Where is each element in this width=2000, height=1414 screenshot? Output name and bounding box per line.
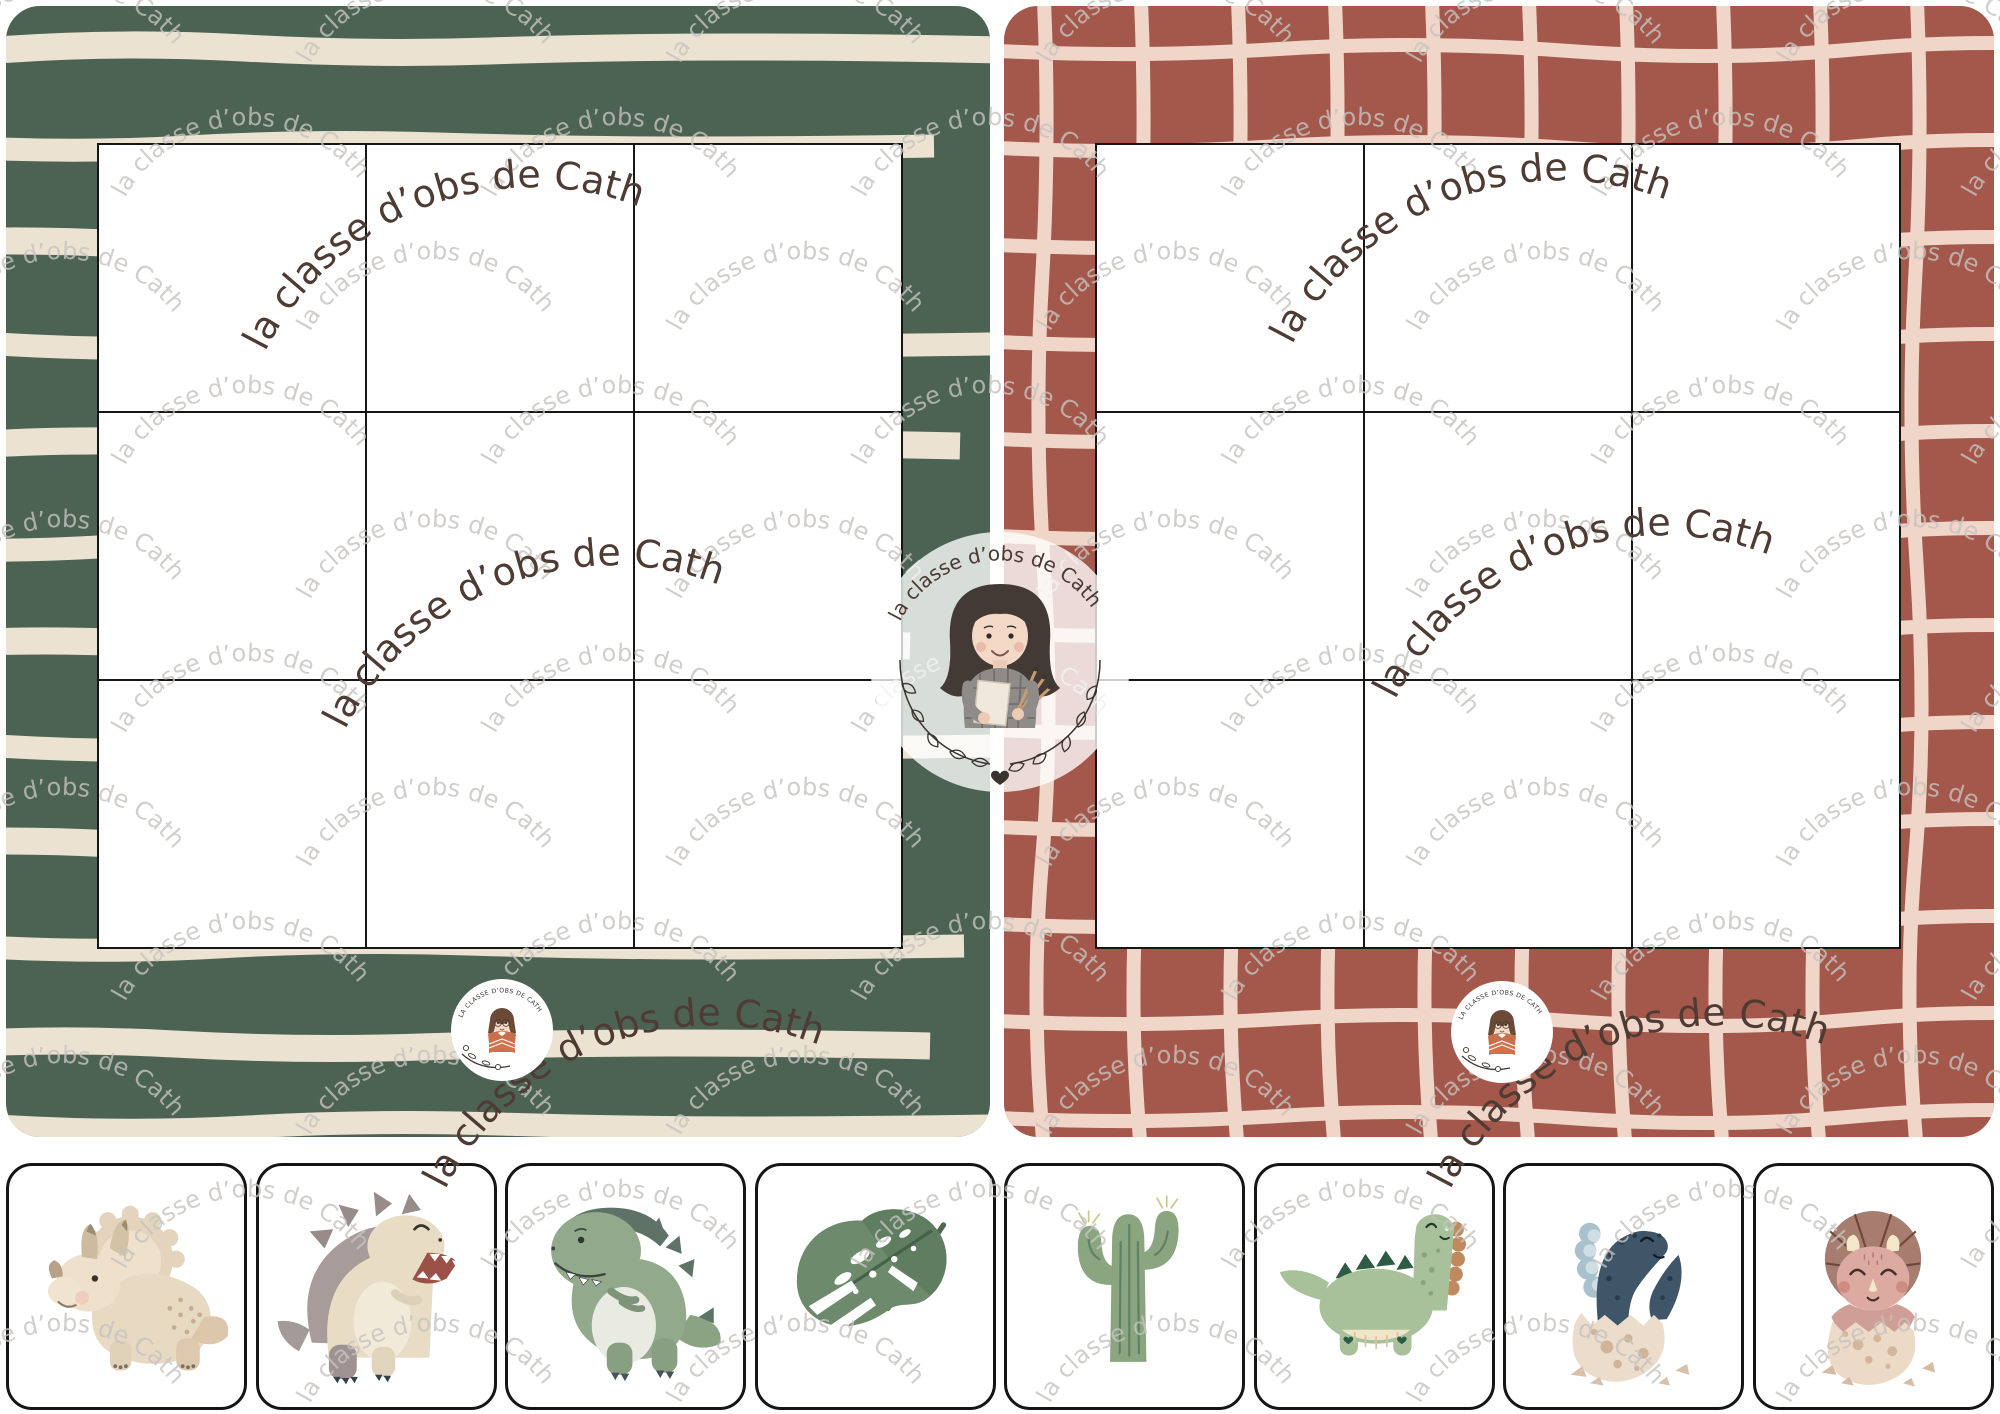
bingo-cell[interactable] xyxy=(99,145,365,411)
bingo-cell[interactable] xyxy=(1097,413,1363,679)
bingo-cell[interactable] xyxy=(1365,413,1631,679)
bingo-grid-right xyxy=(1095,143,1901,949)
bingo-cell[interactable] xyxy=(1365,681,1631,947)
spiky-dino-beige-icon xyxy=(269,1175,483,1399)
cactus-icon xyxy=(1018,1175,1232,1399)
bingo-cell[interactable] xyxy=(367,145,633,411)
bingo-cell[interactable] xyxy=(367,681,633,947)
card-blue-dino-hatchling[interactable] xyxy=(1503,1163,1744,1410)
bingo-cell[interactable] xyxy=(635,145,901,411)
bingo-cell[interactable] xyxy=(1633,413,1899,679)
bingo-cell[interactable] xyxy=(1097,681,1363,947)
bingo-cell[interactable] xyxy=(99,681,365,947)
bingo-cell[interactable] xyxy=(1097,145,1363,411)
card-t-rex-green[interactable] xyxy=(505,1163,746,1410)
card-cactus[interactable] xyxy=(1004,1163,1245,1410)
triceratops-beige-icon xyxy=(20,1175,234,1399)
monstera-leaf-icon xyxy=(768,1175,982,1399)
blue-dino-hatchling-icon xyxy=(1517,1175,1731,1399)
bingo-cell[interactable] xyxy=(1633,145,1899,411)
card-monstera-leaf[interactable] xyxy=(755,1163,996,1410)
bingo-cell[interactable] xyxy=(99,413,365,679)
bingo-cell[interactable] xyxy=(635,681,901,947)
brontosaurus-green-icon xyxy=(1267,1175,1481,1399)
bingo-grid-left xyxy=(97,143,903,949)
pink-triceratops-hatchling-icon xyxy=(1766,1175,1980,1399)
card-brontosaurus-green[interactable] xyxy=(1254,1163,1495,1410)
card-tray xyxy=(0,1163,2000,1410)
bingo-cell[interactable] xyxy=(1633,681,1899,947)
bingo-cell[interactable] xyxy=(635,413,901,679)
card-pink-triceratops-hatchling[interactable] xyxy=(1753,1163,1994,1410)
board-terracotta-checked xyxy=(1004,6,1994,1137)
t-rex-green-icon xyxy=(519,1175,733,1399)
card-triceratops-beige[interactable] xyxy=(6,1163,247,1410)
bingo-cell[interactable] xyxy=(367,413,633,679)
bingo-cell[interactable] xyxy=(1365,145,1631,411)
card-spiky-dino-beige[interactable] xyxy=(256,1163,497,1410)
board-green-striped xyxy=(6,6,990,1137)
